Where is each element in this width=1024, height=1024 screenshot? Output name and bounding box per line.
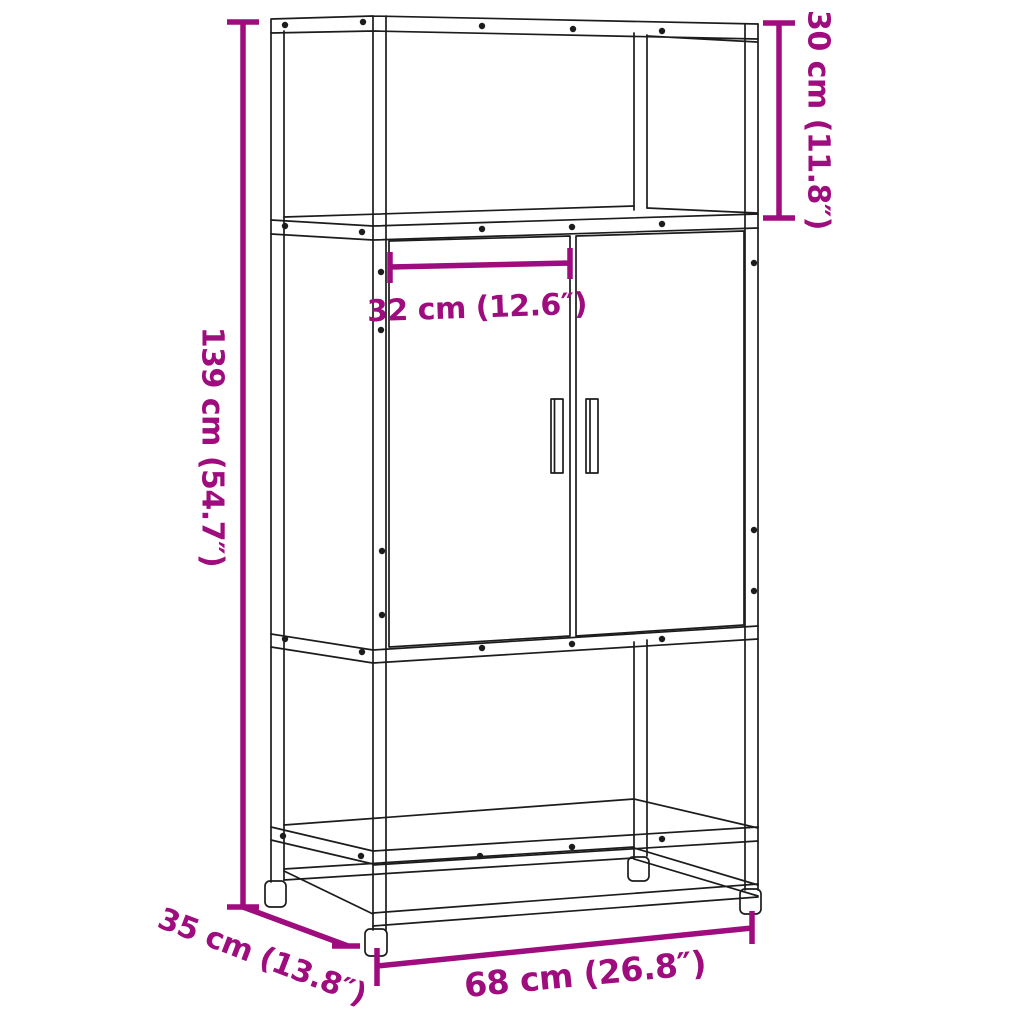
top-compartment-dimension-label: 30 cm (11.8″) [801,10,836,230]
lower-mid-rails [271,626,758,663]
foot-back-left [265,881,286,907]
height-dimension-label: 139 cm (54.7″) [195,327,230,567]
back-left-post [271,20,284,882]
middle-shelf-rails [271,206,758,240]
base-frame [284,847,758,926]
inner-width-dimension-line [390,248,570,283]
top-frame-rails [271,16,758,42]
foot-front-right [740,889,761,914]
height-dimension-line [227,22,259,907]
cabinet-line-art [0,0,1024,1024]
dimension-diagram: 139 cm (54.7″) 30 cm (11.8″) 32 cm (12.6… [0,0,1024,1024]
back-right-post [634,33,647,858]
door-handle-right [586,399,598,473]
door-handle-left [551,399,563,473]
front-right-post [745,24,758,890]
top-compartment-dimension-line [763,23,795,218]
screws [280,19,757,859]
right-door [576,231,744,636]
front-left-post [373,16,386,930]
